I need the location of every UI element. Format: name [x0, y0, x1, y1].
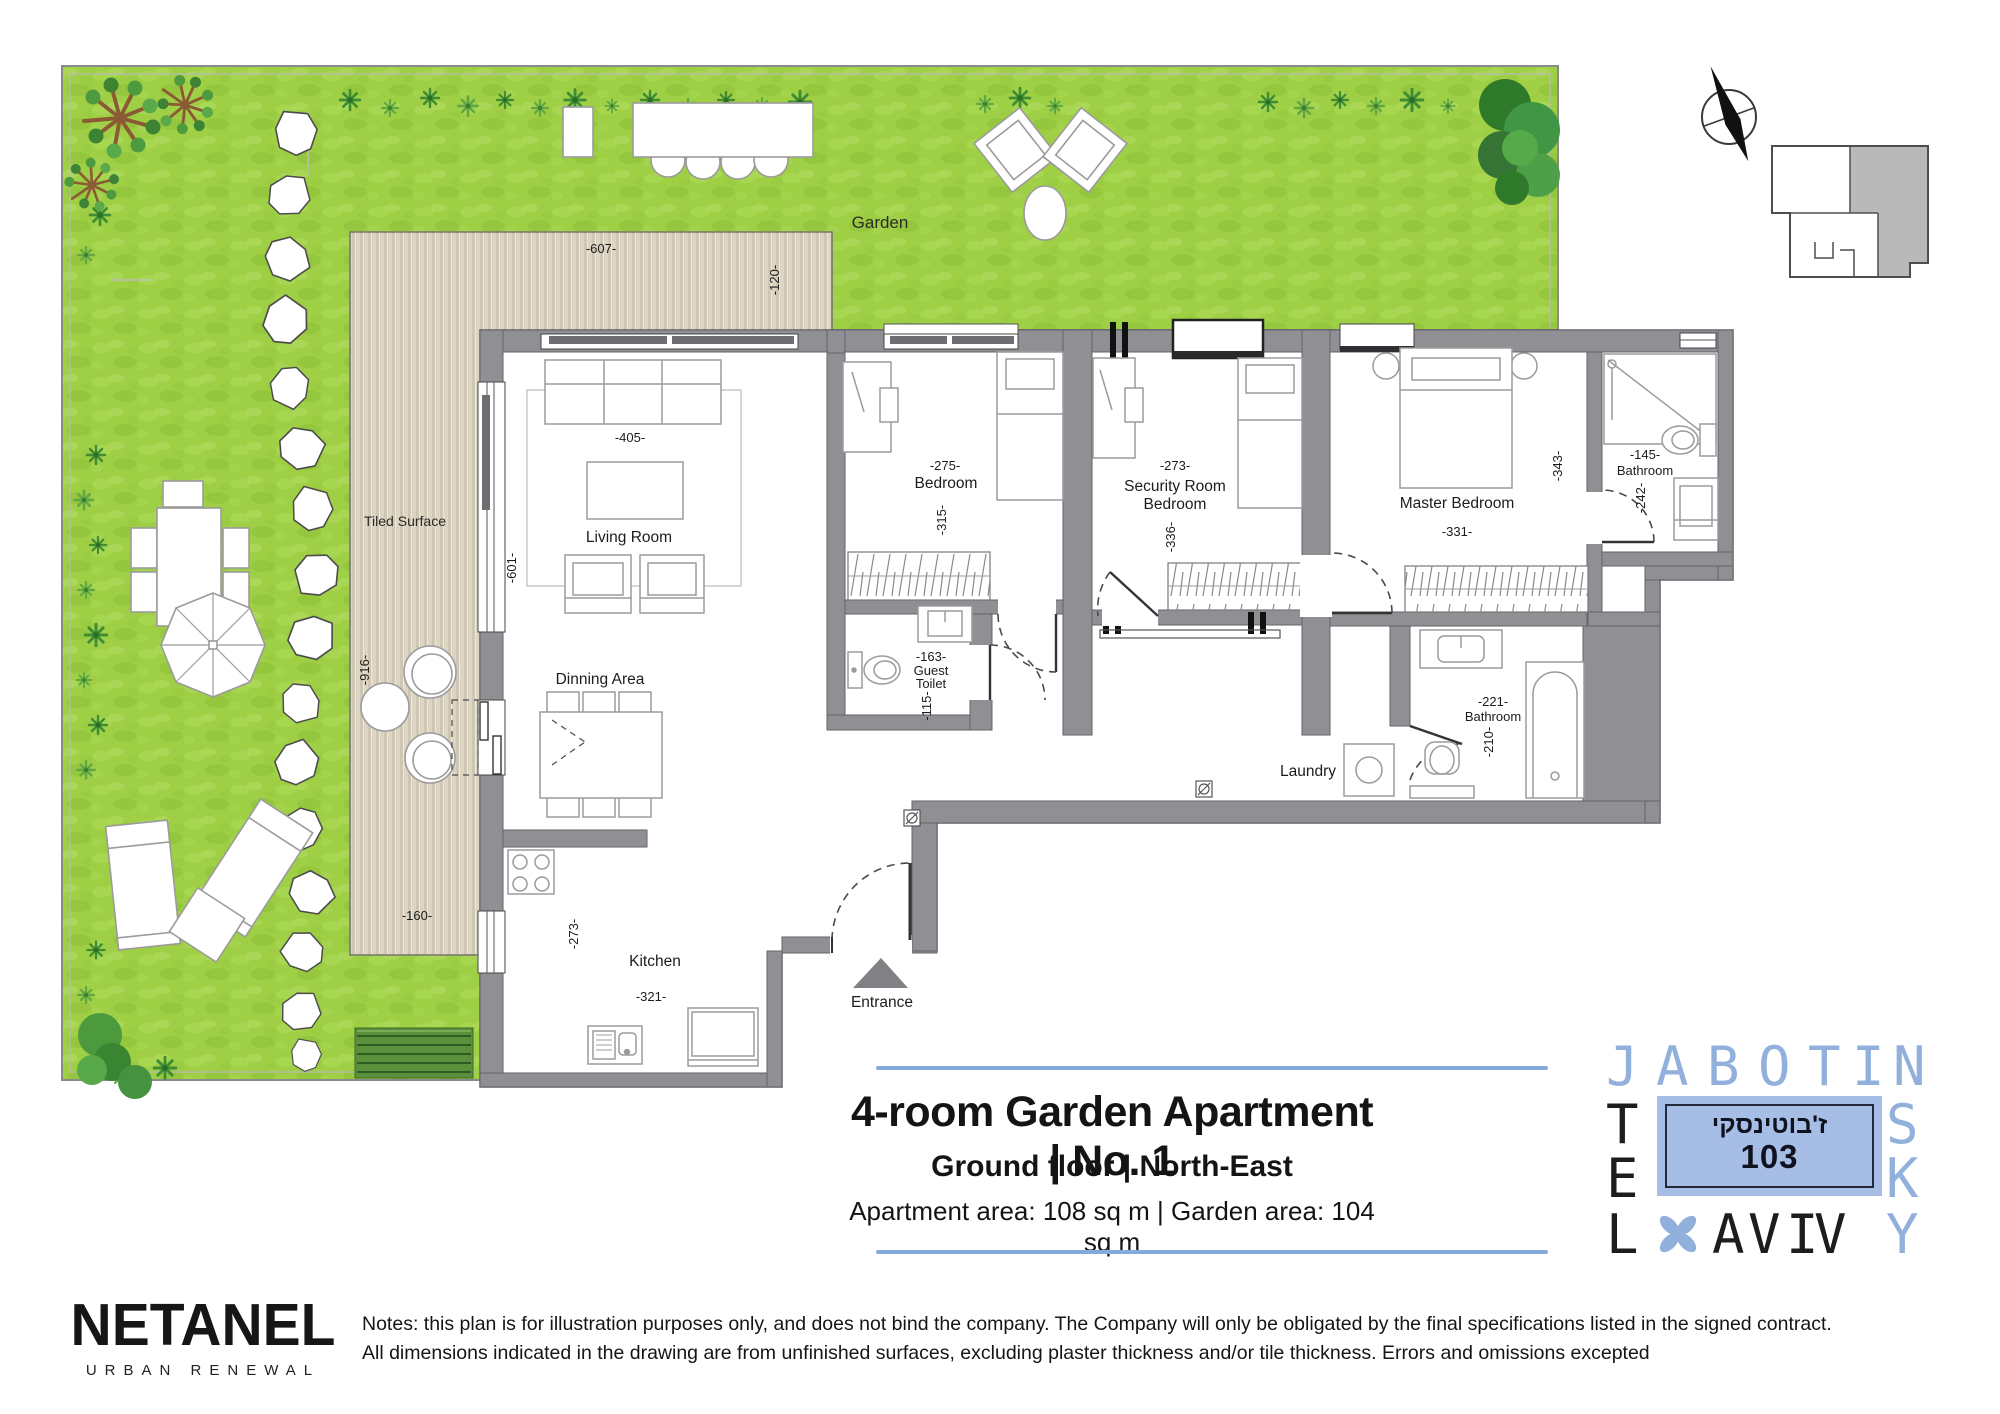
gt-dim-h: -115-: [919, 691, 934, 720]
deck-dim-120: -120-: [767, 265, 782, 295]
tiled-surface-label: Tiled Surface: [364, 513, 446, 529]
logo-letter: S: [1886, 1098, 1919, 1152]
stove: [508, 850, 554, 894]
plan-area-line: Apartment area: 108 sq m | Garden area: …: [842, 1196, 1382, 1258]
master-dim-w: -331-: [1442, 524, 1472, 539]
kitchen-dim-w: -321-: [636, 989, 666, 1004]
hedge-strip: [355, 1028, 473, 1078]
bath1-label: Bathroom: [1617, 463, 1673, 478]
entrance-marker: [853, 958, 908, 988]
bath1-dim-w: -145-: [1630, 447, 1660, 462]
bedroom-closet: [848, 552, 990, 600]
bath2-label: Bathroom: [1465, 709, 1521, 724]
umbrella: [161, 593, 265, 697]
sink-1: [1674, 478, 1718, 540]
logo-letter: E: [1606, 1152, 1639, 1206]
logo-letter: Y: [1886, 1208, 1919, 1262]
nightstand-left: [1373, 353, 1399, 379]
security-closet: [1168, 563, 1302, 610]
gt-sink: [918, 606, 972, 642]
security-bed: [1238, 358, 1302, 508]
logo-letter: K: [1886, 1152, 1919, 1206]
master-closet: [1405, 566, 1588, 612]
vanity-sink-2: [1420, 630, 1502, 668]
gt-label-2: Toilet: [916, 676, 947, 691]
street-name-hebrew: ז'בוטינסקי: [1667, 1111, 1872, 1140]
dining-furniture: [540, 692, 662, 817]
security-label-1: Security Room: [1124, 478, 1226, 495]
toilet-1: [1662, 424, 1716, 456]
garden-label: Garden: [852, 213, 909, 232]
title-divider-bottom: [876, 1250, 1548, 1254]
logo-letter: A: [1712, 1208, 1745, 1262]
logo-letter: T: [1606, 1098, 1639, 1152]
dining-table: [540, 712, 662, 798]
bathtub: [1526, 662, 1584, 798]
compass-icon: [1685, 57, 1771, 171]
security-desk: [1093, 358, 1143, 458]
gt-dim-w: -163-: [916, 649, 946, 664]
bedroom-label: Bedroom: [915, 475, 978, 492]
deck-dim-607: -607-: [586, 241, 616, 256]
brand-tagline: URBAN RENEWAL: [64, 1362, 342, 1379]
logo-letter: T: [1808, 1040, 1841, 1094]
street-sign-inner: ז'בוטינסקי 103: [1665, 1104, 1874, 1188]
bath2-dim-h: -210-: [1481, 727, 1496, 757]
living-label: Living Room: [586, 529, 672, 546]
bath1-dim-h: -242-: [1633, 483, 1648, 513]
plan-subtitle: Ground floor | North-East: [842, 1150, 1382, 1184]
notes-line-2: All dimensions indicated in the drawing …: [362, 1339, 1982, 1368]
kitchen-label: Kitchen: [629, 953, 681, 970]
bathroom-window: [1680, 333, 1716, 348]
security-label-2: Bedroom: [1144, 496, 1207, 513]
bedroom-dim-h: -315-: [934, 505, 949, 535]
bath2-dim-w: -221-: [1478, 694, 1508, 709]
bedroom-dim-w: -275-: [930, 458, 960, 473]
living-dim-h: -601-: [504, 553, 519, 583]
logo-letter: J: [1606, 1040, 1639, 1094]
bedroom-desk: [843, 362, 898, 452]
bedroom-window: [884, 324, 1018, 349]
master-bed: [1400, 348, 1512, 488]
deck-dim-160: -160-: [402, 908, 432, 923]
living-dim-w: -405-: [615, 430, 645, 445]
key-plan: [1772, 146, 1928, 277]
security-dim-h: -336-: [1163, 522, 1178, 552]
street-sign: ז'בוטינסקי 103: [1657, 1096, 1882, 1196]
disclaimer-notes: Notes: this plan is for illustration pur…: [362, 1310, 1982, 1368]
shower: [1604, 354, 1716, 444]
street-number: 103: [1667, 1138, 1872, 1176]
sofa: [545, 360, 721, 424]
logo-letter: V: [1748, 1208, 1781, 1262]
entrance-label: Entrance: [851, 994, 913, 1011]
master-label: Master Bedroom: [1400, 495, 1515, 512]
deck-dim-916: -916-: [357, 655, 372, 685]
kitchen-dim-h: -273-: [566, 919, 581, 949]
logo-letter: A: [1656, 1040, 1689, 1094]
logo-letter: L: [1606, 1208, 1639, 1262]
logo-letter: I: [1852, 1040, 1885, 1094]
armchair-1: [565, 555, 631, 613]
washing-machine: [1344, 744, 1394, 796]
living-room-window: [541, 334, 798, 349]
dining-label: Dinning Area: [556, 671, 645, 688]
refrigerator: [688, 1008, 758, 1066]
security-dim-w: -273-: [1160, 458, 1190, 473]
logo-letter: N: [1893, 1040, 1926, 1094]
brand-name: NETANEL: [64, 1291, 342, 1360]
logo-letter: B: [1707, 1040, 1740, 1094]
nightstand-right: [1511, 353, 1537, 379]
logo-letter: O: [1758, 1040, 1791, 1094]
floor-plan-page: Garden Tiled Surface -607- -120- -916- -…: [0, 0, 2000, 1414]
armchair-2: [640, 555, 704, 613]
title-divider-top: [876, 1066, 1548, 1070]
tel-aviv-flower-icon: [1652, 1208, 1704, 1265]
kitchen-sink: [588, 1026, 642, 1064]
bedroom-bed: [997, 352, 1063, 500]
netanel-logo: NETANEL URBAN RENEWAL: [64, 1292, 342, 1379]
notes-line-1: Notes: this plan is for illustration pur…: [362, 1310, 1982, 1339]
coffee-table: [587, 462, 683, 519]
master-dim-h: -343-: [1550, 451, 1565, 481]
laundry-label: Laundry: [1280, 763, 1336, 780]
logo-letter: V: [1814, 1208, 1847, 1262]
